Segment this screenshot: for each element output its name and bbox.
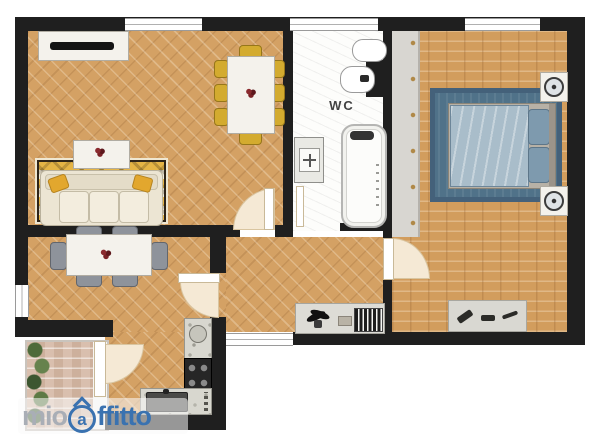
faucet (163, 389, 169, 394)
washbasin-sink (299, 148, 320, 172)
watermark-mioaffitto: mio a ffitto (18, 398, 188, 434)
wall-dining-bottom (15, 320, 113, 337)
watermark-ffitto: ffitto (97, 398, 151, 434)
bed-pillow (528, 109, 550, 145)
bidet-drain (360, 75, 369, 82)
wardrobe (392, 31, 420, 237)
nightstand-lamp (544, 77, 564, 97)
window-bathroom (290, 18, 378, 31)
sofa-cushion (119, 191, 149, 223)
wall-right (567, 17, 585, 345)
tv (50, 42, 114, 50)
dining-door (178, 273, 220, 283)
counter-dishes (189, 325, 207, 343)
shelf-item (481, 315, 495, 321)
window-hallway (226, 333, 293, 346)
bathtub-jets (376, 161, 379, 206)
watermark-mio: mio (22, 398, 67, 434)
bed-headboard (549, 104, 555, 186)
bidet (340, 66, 375, 93)
shelf-item (502, 310, 518, 319)
flower-centerpiece (93, 145, 107, 159)
washbasin (294, 137, 324, 183)
gray-chair (50, 242, 67, 270)
book-row (354, 308, 383, 332)
wall-hallway-left-upper (210, 237, 226, 273)
sofa-cushion (89, 191, 119, 223)
hallway-console (295, 303, 385, 334)
toilet (352, 39, 387, 62)
wc-label: WC (318, 98, 366, 113)
house-a-icon: a (68, 405, 96, 433)
balcony-door (94, 341, 106, 397)
gray-chair (151, 242, 168, 270)
sofa (40, 170, 163, 226)
console-trinket (338, 316, 352, 326)
window-dining (15, 285, 29, 317)
bed-duvet (450, 105, 529, 187)
plant-icon (302, 307, 332, 329)
bed-frame (448, 103, 556, 189)
nightstand-lamp (544, 191, 564, 211)
living-door (264, 188, 274, 230)
bathtub (341, 124, 387, 228)
window-bedroom (465, 18, 540, 31)
stove-knobs (204, 392, 208, 411)
flower-centerpiece (244, 86, 258, 100)
flower-centerpiece (98, 246, 114, 262)
wall-bathroom-left (283, 31, 293, 225)
wall-living-bottom-b (275, 225, 293, 237)
bathroom-door (296, 186, 304, 227)
bedroom-door (383, 238, 394, 280)
sofa-cushion (59, 191, 89, 223)
kitchen-counter (184, 318, 212, 360)
shelf-item (456, 309, 473, 324)
floor-plan: WC (0, 0, 600, 445)
bathtub-headrest (350, 131, 374, 140)
window-living (125, 18, 202, 31)
watermark-a: a (77, 411, 86, 428)
bed-pillow (528, 147, 550, 183)
bedroom-shelf (448, 300, 527, 332)
